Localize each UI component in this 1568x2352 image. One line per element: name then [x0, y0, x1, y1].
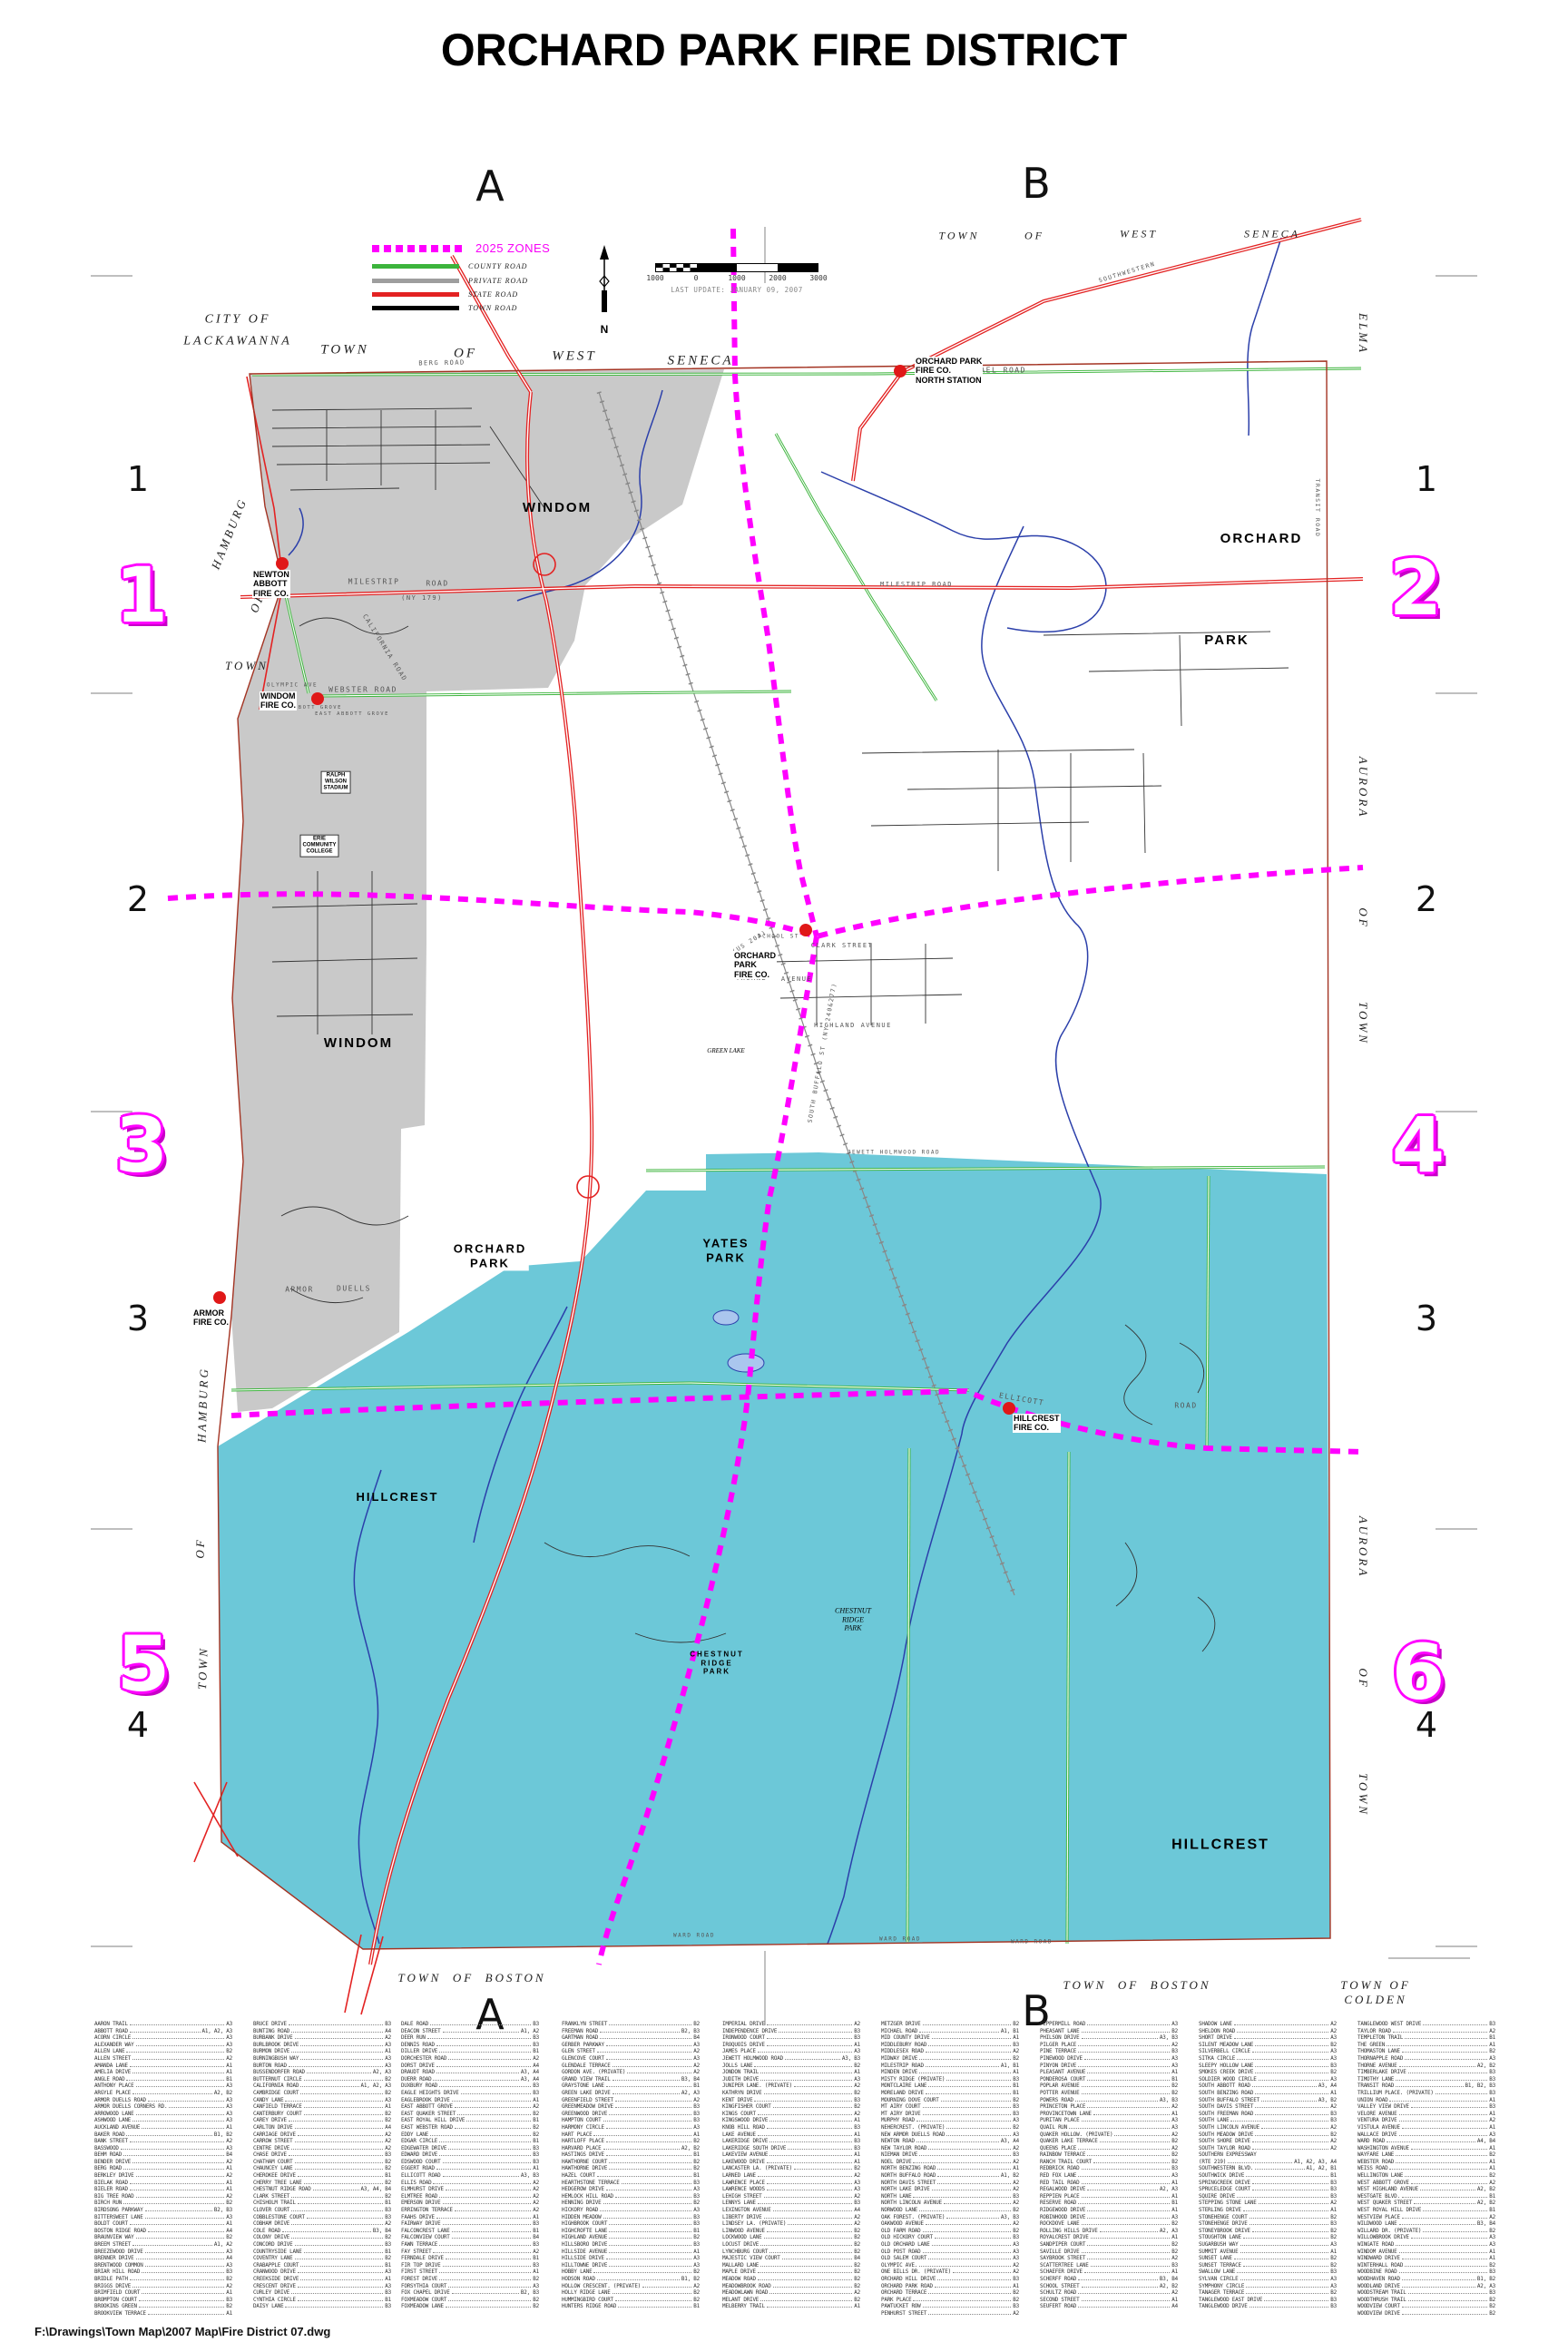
legend-label: PRIVATE ROAD [468, 277, 528, 285]
scale-tick: 1000 [728, 274, 745, 282]
zones-label: 2025 ZONES [475, 241, 550, 255]
north-arrow: N [590, 245, 619, 336]
legend: 2025 ZONES COUNTY ROADPRIVATE ROADSTATE … [372, 241, 550, 316]
legend-swatch [372, 264, 459, 269]
scale-tick: 0 [694, 274, 699, 282]
map-sheet: ORCHARD PARK FIRE DISTRICT [0, 0, 1568, 2352]
legend-item: PRIVATE ROAD [372, 273, 550, 287]
file-path: F:\Drawings\Town Map\2007 Map\Fire Distr… [34, 2325, 330, 2338]
scale-ticks: 10000100020003000 [655, 272, 818, 281]
legend-road-rows: COUNTY ROADPRIVATE ROADSTATE ROADTOWN RO… [372, 260, 550, 316]
legend-swatch [372, 306, 459, 310]
zones-dash-swatch [372, 245, 463, 252]
last-update-text: LAST UPDATE: JANUARY 09, 2007 [655, 286, 818, 294]
legend-item: STATE ROAD [372, 288, 550, 301]
legend-zones-row: 2025 ZONES [372, 241, 550, 255]
scale-bar: 10000100020003000 LAST UPDATE: JANUARY 0… [655, 263, 818, 294]
north-arrow-icon [593, 245, 615, 318]
map-canvas [0, 0, 1568, 2352]
legend-item: TOWN ROAD [372, 301, 550, 315]
scale-tick: 2000 [769, 274, 786, 282]
scale-tick: 3000 [809, 274, 827, 282]
legend-label: TOWN ROAD [468, 304, 517, 312]
legend-swatch [372, 279, 459, 283]
scale-tick: 1000 [646, 274, 663, 282]
legend-item: COUNTY ROAD [372, 260, 550, 273]
legend-swatch [372, 292, 459, 297]
scale-bar-graphic [655, 263, 818, 272]
legend-label: COUNTY ROAD [468, 262, 527, 270]
north-label: N [590, 323, 619, 336]
legend-label: STATE ROAD [468, 290, 518, 299]
